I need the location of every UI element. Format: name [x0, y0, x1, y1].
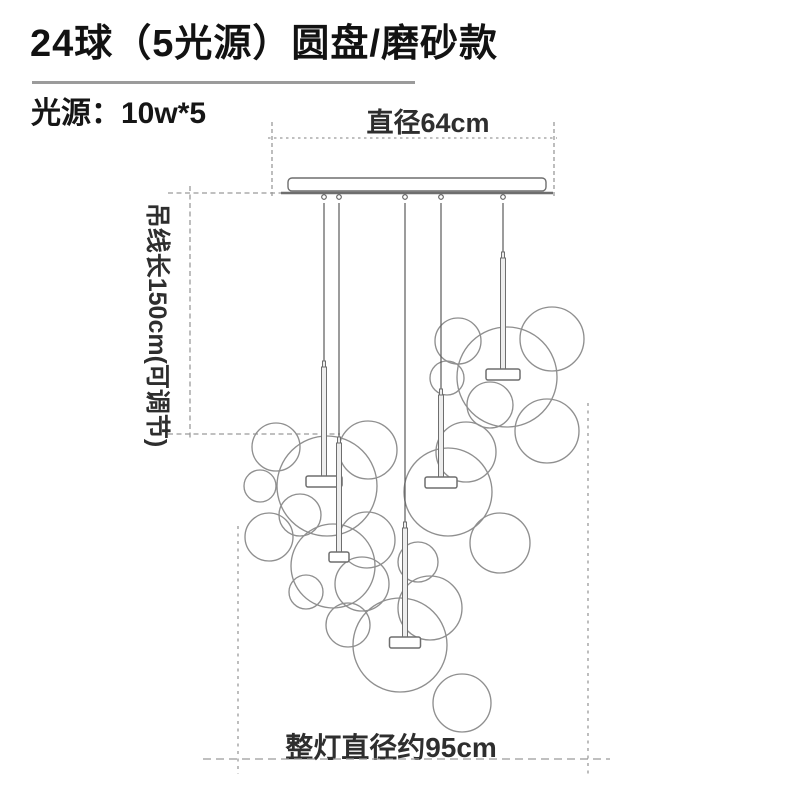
bubble-circle	[515, 399, 579, 463]
dimension-lines-layer	[168, 122, 610, 774]
pendant-tube	[403, 528, 408, 637]
bubble-circle	[244, 470, 276, 502]
bubble-circle	[279, 494, 321, 536]
canopy-disc	[288, 178, 546, 191]
tube-cap	[338, 437, 341, 443]
pendant-tube	[501, 258, 506, 369]
wire-connector	[439, 195, 444, 200]
bubble-circle	[245, 513, 293, 561]
bubble-circle	[339, 421, 397, 479]
tube-cap	[404, 522, 407, 528]
bubble-circle	[467, 382, 513, 428]
pendant-plate	[425, 477, 457, 488]
ceiling-canopy-layer	[281, 178, 553, 193]
bubble-circle	[435, 318, 481, 364]
tube-cap	[323, 361, 326, 367]
pendant-tube	[337, 443, 342, 552]
pendant-tube	[322, 367, 327, 476]
chandelier-line-drawing	[0, 0, 800, 800]
bubble-circle	[404, 448, 492, 536]
bubble-circle	[289, 575, 323, 609]
bubble-circle	[433, 674, 491, 732]
wire-connector	[403, 195, 408, 200]
product-spec-page: { "header": { "title": "24球（5光源）圆盘/磨砂款",…	[0, 0, 800, 800]
pendant-plate	[329, 552, 349, 562]
bubble-circle	[470, 513, 530, 573]
glass-bubbles-layer	[244, 307, 584, 732]
bubble-circle	[252, 423, 300, 471]
wire-connector	[322, 195, 327, 200]
pendant-plate	[486, 369, 520, 380]
tube-cap	[440, 389, 443, 395]
pendant-lights-layer	[306, 195, 520, 648]
wire-connector	[501, 195, 506, 200]
tube-cap	[502, 252, 505, 258]
pendant-plate	[390, 637, 421, 648]
bubble-circle	[291, 524, 375, 608]
pendant-tube	[439, 395, 444, 477]
bubble-circle	[520, 307, 584, 371]
wire-connector	[337, 195, 342, 200]
bubble-circle	[430, 361, 464, 395]
bubble-circle	[326, 603, 370, 647]
